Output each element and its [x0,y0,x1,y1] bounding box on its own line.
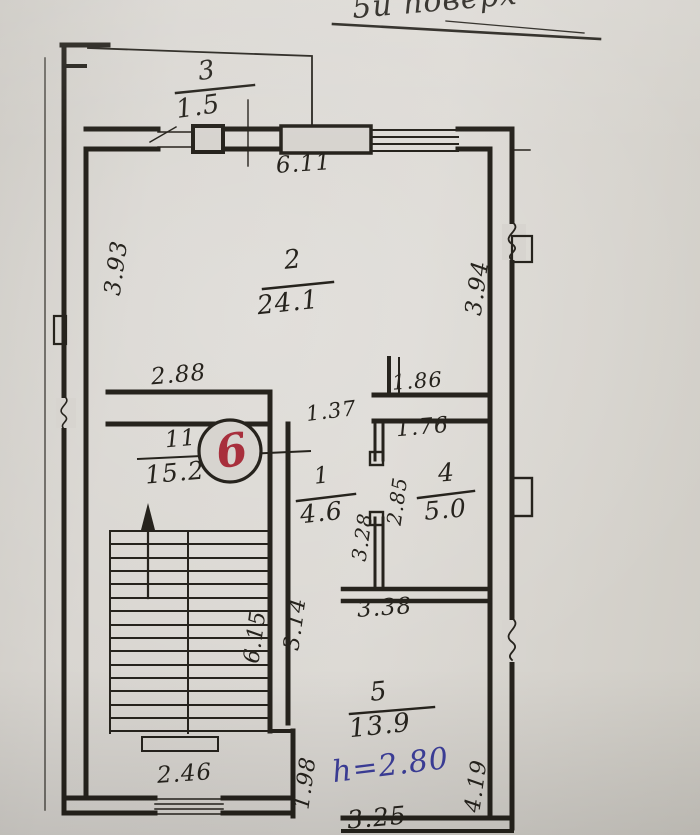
wall-break-right-top [502,222,532,262]
wall-break-right-bottom [502,618,526,662]
dim-partition-left: 3.28 [349,512,376,563]
dim-partition-right: 2.85 [384,476,411,527]
room-corridor-area: 4.6 [299,498,344,527]
window-glazing-lines [372,130,458,151]
small-window [193,126,223,152]
dim-hall-window: 2.46 [156,761,213,788]
hall-window-glazing [155,799,223,814]
dim-room4-top: 1.86 [391,369,443,393]
room5-top-wall [343,560,490,601]
dim-hall-top: 2.88 [150,362,207,390]
room-balcony-number: 3 [196,57,217,85]
scanned-floor-plan: 5й поверх 3 1.5 6.11 2 24.1 3.93 3.94 2.… [0,0,700,835]
room-corridor-number: 1 [313,464,331,489]
right-wall-niche [512,478,532,516]
dim-room5-bottom: 3.25 [346,802,408,832]
room-hall-area: 15.2 [144,457,206,487]
room-living-area: 24.1 [256,287,320,319]
room-living-number: 2 [283,246,303,274]
dim-room4-inner: 1.76 [395,415,450,442]
room-hall-number: 11 [164,427,197,453]
dim-room5-top: 3.38 [356,595,413,622]
room-5-number: 5 [369,678,389,706]
bottom-walls [64,798,512,831]
room-balcony-area: 1.5 [174,91,222,123]
wall-break-left [56,396,76,429]
room-kitchen-number: 4 [437,459,456,485]
dim-top-window: 6.11 [275,151,332,178]
room-5-area: 13.9 [348,710,412,742]
room-kitchen-area: 5.0 [423,495,468,524]
radiator-box [142,737,218,751]
